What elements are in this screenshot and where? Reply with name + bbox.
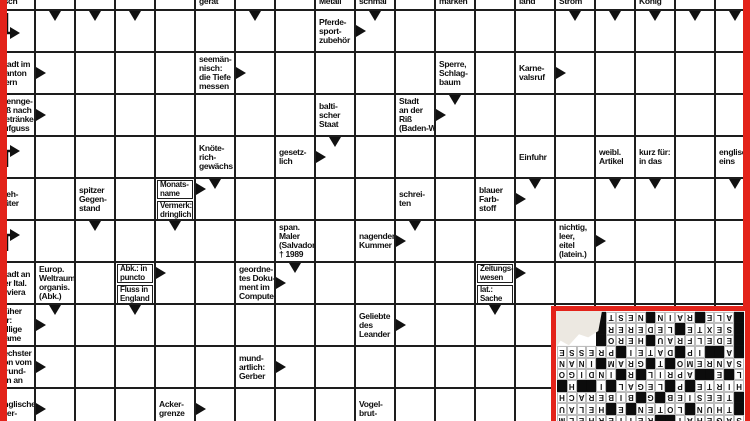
clue-cell: gesetz-lich: [274, 135, 316, 179]
solution-letter-cell: S: [695, 392, 705, 403]
solution-letter-cell: R: [587, 392, 597, 403]
answer-cell[interactable]: [674, 9, 716, 53]
answer-cell[interactable]: [114, 51, 156, 95]
answer-cell[interactable]: [514, 9, 556, 53]
solution-letter-cell: A: [577, 392, 587, 403]
answer-cell[interactable]: [194, 219, 236, 263]
solution-letter-cell: E: [715, 323, 725, 334]
solution-letter-cell: H: [695, 415, 705, 421]
solution-letter-cell: E: [596, 392, 606, 403]
clue-text: Einfuhr: [519, 153, 554, 162]
answer-cell[interactable]: [394, 219, 436, 263]
clue-half: Abk.: inpuncto: [117, 264, 153, 283]
solution-letter-cell: E: [705, 392, 715, 403]
solution-letter-cell: E: [705, 335, 715, 346]
arrow-right-icon: [36, 319, 46, 331]
answer-cell[interactable]: [274, 177, 316, 221]
answer-cell[interactable]: [194, 303, 236, 347]
solution-letter-cell: T: [724, 403, 734, 414]
answer-cell[interactable]: [154, 51, 196, 95]
answer-cell[interactable]: [674, 177, 716, 221]
arrow-right-icon: [196, 183, 206, 195]
arrow-down-icon: [129, 305, 141, 315]
answer-cell[interactable]: [234, 387, 276, 421]
solution-letter-cell: R: [626, 323, 636, 334]
answer-cell[interactable]: [474, 345, 516, 389]
solution-letter-cell: I: [665, 312, 675, 323]
solution-letter-cell: E: [626, 312, 636, 323]
arrow-down-icon: [649, 179, 661, 189]
solution-letter-cell: T: [655, 358, 665, 369]
clue-cell: Knöte-rich-gewächs: [194, 135, 236, 179]
clue-text: Computer: [239, 292, 274, 301]
solution-letter-cell: E: [695, 358, 705, 369]
solution-letter-cell: N: [577, 358, 587, 369]
answer-cell[interactable]: [674, 51, 716, 95]
answer-cell[interactable]: [274, 51, 316, 95]
answer-cell[interactable]: [594, 261, 636, 305]
answer-cell[interactable]: [194, 9, 236, 53]
solution-letter-cell: H: [636, 335, 646, 346]
answer-cell[interactable]: [434, 387, 476, 421]
solution-black-cell: [734, 335, 744, 346]
clue-text: Sache: [480, 295, 512, 304]
clue-cell: mund-artlich:Gerber: [234, 345, 276, 389]
answer-cell[interactable]: [434, 9, 476, 53]
answer-cell[interactable]: [154, 261, 196, 305]
answer-cell[interactable]: [394, 51, 436, 95]
solution-letter-cell: N: [655, 312, 665, 323]
solution-letter-cell: E: [646, 380, 656, 391]
solution-letter-cell: R: [596, 415, 606, 421]
answer-cell[interactable]: [514, 261, 556, 305]
clue-text: grenze: [159, 409, 194, 418]
answer-cell[interactable]: [354, 9, 396, 53]
solution-letter-cell: E: [715, 369, 725, 380]
solution-letter-cell: G: [646, 392, 656, 403]
answer-cell[interactable]: [314, 303, 356, 347]
arrow-down-icon: [729, 11, 741, 21]
clue-cell: spitzerGegen-stand: [74, 177, 116, 221]
solution-letter-cell: T: [724, 392, 734, 403]
clue-text: Staat: [319, 120, 354, 129]
solution-letter-cell: H: [557, 392, 567, 403]
solution-letter-cell: I: [685, 392, 695, 403]
clue-text: Leander: [359, 330, 394, 339]
answer-cell[interactable]: [674, 219, 716, 263]
answer-cell[interactable]: [74, 135, 116, 179]
solution-black-cell: [606, 403, 616, 414]
solution-letter-cell: A: [655, 346, 665, 357]
answer-cell[interactable]: [74, 9, 116, 53]
answer-cell[interactable]: [154, 345, 196, 389]
answer-cell[interactable]: [594, 93, 636, 137]
solution-letter-cell: T: [646, 346, 656, 357]
answer-cell[interactable]: [274, 345, 316, 389]
clue-cell: Karne-valsruf: [514, 51, 556, 95]
solution-black-cell: [646, 358, 656, 369]
arrow-right-icon: [516, 193, 526, 205]
clue-cell: span.Maler(Salvador)† 1989: [274, 219, 316, 263]
arrow-right-icon: [276, 277, 286, 289]
answer-cell[interactable]: [234, 51, 276, 95]
answer-cell[interactable]: [34, 135, 76, 179]
solution-letter-cell: E: [705, 415, 715, 421]
solution-letter-cell: E: [626, 335, 636, 346]
solution-letter-cell: N: [557, 358, 567, 369]
arrow-down-icon: [89, 11, 101, 21]
answer-cell[interactable]: [194, 387, 236, 421]
answer-cell[interactable]: [314, 177, 356, 221]
clue-cell: Europ.Weltraum-organis.(Abk.): [34, 261, 76, 305]
answer-cell[interactable]: [354, 345, 396, 389]
answer-cell[interactable]: [474, 93, 516, 137]
answer-cell[interactable]: [34, 93, 76, 137]
solution-letter-cell: A: [724, 312, 734, 323]
answer-cell[interactable]: [394, 387, 436, 421]
solution-letter-cell: F: [685, 335, 695, 346]
clue-cell: Stadtan derRiß(Baden-W.): [394, 93, 436, 137]
solution-letter-cell: R: [665, 369, 675, 380]
solution-letter-cell: L: [616, 380, 626, 391]
solution-letter-cell: R: [715, 380, 725, 391]
answer-cell[interactable]: [674, 93, 716, 137]
solution-black-cell: [655, 415, 665, 421]
solution-black-cell: [606, 380, 616, 391]
answer-cell[interactable]: [114, 93, 156, 137]
answer-cell[interactable]: [234, 177, 276, 221]
answer-cell[interactable]: [394, 303, 436, 347]
answer-cell[interactable]: [594, 9, 636, 53]
clue-cell: geordne-tes Doku-ment imComputer: [234, 261, 276, 305]
answer-cell[interactable]: [354, 261, 396, 305]
solution-letter-cell: P: [606, 346, 616, 357]
solution-black-cell: [695, 369, 705, 380]
answer-cell[interactable]: [314, 51, 356, 95]
solution-letter-cell: L: [734, 369, 744, 380]
solution-letter-cell: G: [636, 380, 646, 391]
answer-cell[interactable]: [114, 135, 156, 179]
solution-letter-cell: A: [724, 415, 734, 421]
solution-black-cell: [646, 335, 656, 346]
solution-letter-cell: H: [596, 403, 606, 414]
solution-letter-cell: H: [734, 380, 744, 391]
answer-cell[interactable]: [394, 261, 436, 305]
solution-letter-cell: R: [646, 415, 656, 421]
answer-cell[interactable]: [474, 219, 516, 263]
answer-cell[interactable]: [74, 51, 116, 95]
answer-cell[interactable]: [314, 387, 356, 421]
answer-cell[interactable]: [514, 93, 556, 137]
answer-cell[interactable]: [514, 345, 556, 389]
answer-cell[interactable]: [274, 261, 316, 305]
arrow-right-icon: [196, 403, 206, 415]
answer-cell[interactable]: [154, 9, 196, 53]
solution-letter-cell: E: [695, 380, 705, 391]
answer-cell[interactable]: [34, 303, 76, 347]
solution-letter-cell: A: [665, 335, 675, 346]
answer-cell[interactable]: [114, 9, 156, 53]
answer-cell[interactable]: [434, 177, 476, 221]
answer-cell[interactable]: [354, 93, 396, 137]
solution-black-cell: [596, 335, 606, 346]
clue-cell: kurz für:in das: [634, 135, 676, 179]
answer-cell[interactable]: [434, 93, 476, 137]
answer-cell[interactable]: [154, 93, 196, 137]
answer-cell[interactable]: [634, 9, 676, 53]
solution-black-cell: [665, 380, 675, 391]
answer-cell[interactable]: [474, 51, 516, 95]
answer-cell[interactable]: [74, 303, 116, 347]
answer-cell[interactable]: [274, 9, 316, 53]
answer-cell[interactable]: [314, 219, 356, 263]
answer-cell[interactable]: [274, 303, 316, 347]
answer-cell[interactable]: [354, 135, 396, 179]
solution-letter-cell: N: [695, 403, 705, 414]
solution-letter-cell: T: [705, 380, 715, 391]
solution-letter-cell: S: [616, 312, 626, 323]
answer-cell[interactable]: [474, 135, 516, 179]
solution-black-cell: [705, 369, 715, 380]
answer-cell[interactable]: [434, 303, 476, 347]
answer-cell[interactable]: [554, 93, 596, 137]
answer-cell[interactable]: [594, 177, 636, 221]
answer-cell[interactable]: [674, 261, 716, 305]
clue-half: Zeitungs-wesen: [477, 264, 513, 283]
arrow-right-icon: [316, 151, 326, 163]
answer-cell[interactable]: [74, 345, 116, 389]
arrow-down-icon: [609, 179, 621, 189]
answer-cell[interactable]: [394, 9, 436, 53]
clue-text: Metall: [319, 0, 354, 6]
arrow-down-icon: [649, 11, 661, 21]
clue-cell: blauerFarb-stoff: [474, 177, 516, 221]
solution-black-cell: [665, 358, 675, 369]
solution-black-cell: [616, 346, 626, 357]
answer-cell[interactable]: [354, 51, 396, 95]
answer-cell[interactable]: [634, 177, 676, 221]
answer-cell[interactable]: [74, 219, 116, 263]
clue-text: wesen: [480, 274, 512, 283]
arrow-down-icon: [129, 11, 141, 21]
solution-letter-cell: I: [587, 358, 597, 369]
clue-text: gerät: [199, 0, 234, 6]
arrow-right-icon: [36, 403, 46, 415]
answer-cell[interactable]: [194, 93, 236, 137]
answer-cell[interactable]: [74, 387, 116, 421]
answer-cell[interactable]: [234, 93, 276, 137]
arrow-right-icon: [356, 25, 366, 37]
solution-letter-cell: B: [626, 392, 636, 403]
solution-black-cell: [724, 369, 734, 380]
solution-letter-cell: T: [655, 403, 665, 414]
answer-cell[interactable]: [634, 93, 676, 137]
answer-cell[interactable]: [674, 135, 716, 179]
clue-half: Monats-name: [157, 180, 193, 199]
clue-text: puncto: [120, 274, 152, 283]
arrow-right-icon: [516, 267, 526, 279]
solution-letter-cell: P: [675, 369, 685, 380]
solution-letter-cell: H: [587, 415, 597, 421]
answer-cell[interactable]: [554, 177, 596, 221]
answer-cell[interactable]: [74, 261, 116, 305]
solution-letter-cell: I: [626, 415, 636, 421]
solution-letter-cell: H: [715, 403, 725, 414]
solution-letter-cell: E: [724, 335, 734, 346]
answer-cell[interactable]: [194, 345, 236, 389]
answer-cell[interactable]: [634, 219, 676, 263]
arrow-right-icon: [276, 361, 286, 373]
solution-letter-cell: I: [626, 346, 636, 357]
solution-black-cell: [734, 323, 744, 334]
solution-letter-cell: M: [685, 358, 695, 369]
answer-cell[interactable]: [274, 387, 316, 421]
clue-text: stand: [79, 204, 114, 213]
arrow-right-icon: [396, 319, 406, 331]
solution-letter-cell: R: [705, 358, 715, 369]
answer-cell[interactable]: [114, 345, 156, 389]
solution-letter-cell: L: [715, 312, 725, 323]
clue-cell: GeliebtedesLeander: [354, 303, 396, 347]
answer-cell[interactable]: [514, 177, 556, 221]
solution-letter-cell: L: [646, 369, 656, 380]
clue-text: † 1989: [279, 250, 314, 259]
solution-black-cell: [616, 369, 626, 380]
clue-cell: Einfuhr: [514, 135, 556, 179]
answer-cell[interactable]: [474, 387, 516, 421]
answer-cell[interactable]: [434, 135, 476, 179]
answer-cell[interactable]: [394, 345, 436, 389]
clue-cell: Vogel-brut-: [354, 387, 396, 421]
arrow-down-icon: [89, 221, 101, 231]
solution-letter-cell: I: [724, 380, 734, 391]
solution-letter-cell: U: [705, 403, 715, 414]
answer-cell[interactable]: [274, 93, 316, 137]
solution-letter-cell: R: [685, 312, 695, 323]
answer-cell[interactable]: [554, 51, 596, 95]
solution-letter-cell: L: [655, 380, 665, 391]
answer-cell[interactable]: [314, 345, 356, 389]
solution-letter-cell: I: [616, 392, 626, 403]
solution-letter-cell: U: [655, 335, 665, 346]
solution-letter-cell: E: [646, 403, 656, 414]
answer-cell[interactable]: [554, 261, 596, 305]
clue-text: marken: [439, 0, 474, 6]
answer-cell[interactable]: [234, 219, 276, 263]
solution-black-cell: [636, 392, 646, 403]
solution-black-cell: [626, 403, 636, 414]
answer-cell[interactable]: [154, 303, 196, 347]
answer-cell[interactable]: [74, 93, 116, 137]
answer-cell[interactable]: [114, 177, 156, 221]
clue-text: Gerber: [239, 372, 274, 381]
answer-cell[interactable]: [554, 135, 596, 179]
answer-cell[interactable]: [434, 261, 476, 305]
answer-cell[interactable]: [34, 177, 76, 221]
solution-letter-cell: G: [715, 415, 725, 421]
answer-cell[interactable]: [634, 261, 676, 305]
solution-letter-cell: S: [724, 323, 734, 334]
clue-cell: Abk.: inpunctoFluss inEngland: [114, 261, 156, 305]
solution-letter-cell: E: [636, 323, 646, 334]
answer-cell[interactable]: [594, 219, 636, 263]
solution-letter-cell: O: [665, 403, 675, 414]
clue-text: ten: [399, 199, 434, 208]
clue-text: (Baden-W.): [399, 124, 434, 133]
solution-black-cell: [675, 323, 685, 334]
arrow-right-icon: [236, 67, 246, 79]
answer-cell[interactable]: [394, 135, 436, 179]
solution-letter-cell: L: [567, 415, 577, 421]
solution-black-cell: [596, 358, 606, 369]
arrow-down-icon: [209, 179, 221, 189]
answer-cell[interactable]: [434, 219, 476, 263]
arrow-down-icon: [169, 221, 181, 231]
solution-black-cell: [705, 346, 715, 357]
answer-cell[interactable]: [474, 9, 516, 53]
arrow-down-icon: [489, 305, 501, 315]
answer-cell[interactable]: [194, 261, 236, 305]
answer-cell[interactable]: [314, 261, 356, 305]
solution-letter-cell: D: [665, 346, 675, 357]
answer-cell[interactable]: [554, 9, 596, 53]
solution-letter-cell: A: [616, 358, 626, 369]
clue-text: König: [639, 0, 674, 6]
answer-cell[interactable]: [354, 177, 396, 221]
answer-cell[interactable]: [474, 303, 516, 347]
answer-cell[interactable]: [34, 9, 76, 53]
answer-cell[interactable]: [434, 345, 476, 389]
answer-cell[interactable]: [34, 345, 76, 389]
answer-cell[interactable]: [34, 219, 76, 263]
clue-cell: schrei-ten: [394, 177, 436, 221]
answer-cell[interactable]: [154, 135, 196, 179]
solution-letter-cell: A: [685, 369, 695, 380]
solution-letter-cell: G: [567, 369, 577, 380]
answer-cell[interactable]: [514, 387, 556, 421]
answer-cell[interactable]: [154, 219, 196, 263]
solution-letter-cell: D: [587, 369, 597, 380]
clue-text: land: [519, 0, 554, 6]
solution-black-cell: [636, 369, 646, 380]
answer-cell[interactable]: [514, 303, 556, 347]
answer-cell[interactable]: [34, 51, 76, 95]
clue-text: Kummer: [359, 241, 394, 250]
solution-black-cell: [715, 346, 725, 357]
answer-cell[interactable]: [634, 51, 676, 95]
answer-cell[interactable]: [194, 177, 236, 221]
answer-cell[interactable]: [34, 387, 76, 421]
arrow-down-icon: [689, 11, 701, 21]
answer-cell[interactable]: [114, 219, 156, 263]
answer-cell[interactable]: [114, 387, 156, 421]
answer-cell[interactable]: [234, 303, 276, 347]
clue-cell: Sperre,Schlag-baum: [434, 51, 476, 95]
solution-letter-cell: O: [675, 358, 685, 369]
solution-letter-cell: N: [596, 369, 606, 380]
answer-cell[interactable]: [234, 135, 276, 179]
arrow-down-icon: [289, 263, 301, 273]
solution-letter-cell: A: [724, 346, 734, 357]
answer-cell[interactable]: [234, 9, 276, 53]
solution-letter-cell: E: [616, 323, 626, 334]
answer-cell[interactable]: [314, 135, 356, 179]
answer-cell[interactable]: [514, 219, 556, 263]
arrow-down-icon: [729, 179, 741, 189]
answer-cell[interactable]: [594, 51, 636, 95]
answer-cell[interactable]: [114, 303, 156, 347]
solution-letter-cell: A: [685, 415, 695, 421]
